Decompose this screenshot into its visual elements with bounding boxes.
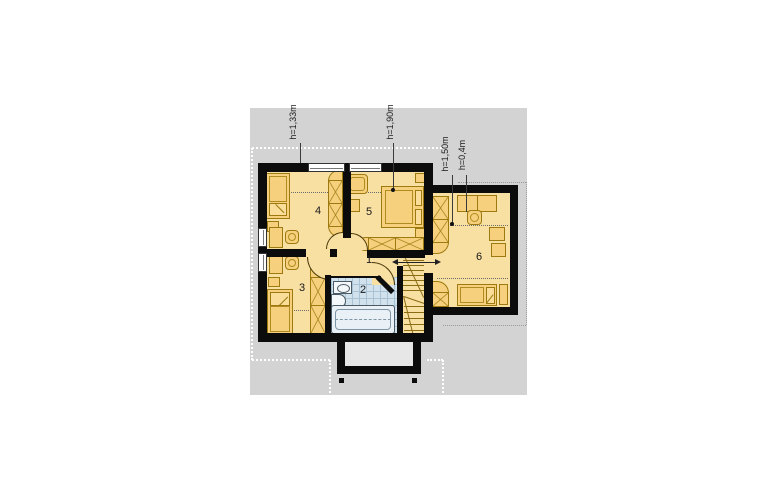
sink	[333, 281, 352, 294]
wardrobe-room3-upper	[310, 277, 326, 306]
wall-bottom	[258, 333, 433, 342]
leader-line-150	[452, 175, 453, 224]
roof-eave-line-bottom-left	[252, 359, 330, 361]
height-annotation-190: h=1,90m	[385, 100, 397, 144]
wardrobe-room4-lower	[328, 203, 343, 227]
roof-eave-line-bottom-right	[427, 359, 443, 361]
stair-tread	[404, 324, 424, 325]
wardrobe-room4-upper	[328, 180, 343, 204]
cabinet-room6-lower	[491, 243, 506, 257]
wall-right-upper	[424, 163, 433, 255]
annex-eave-line-top	[458, 182, 526, 183]
porch-wall-bottom	[337, 366, 421, 374]
bathtub	[331, 305, 395, 334]
post-marker-right	[412, 378, 417, 383]
stair-tread	[403, 265, 424, 266]
desk-room6-right	[477, 195, 497, 212]
room-label-bedroom3: 3	[296, 282, 308, 294]
wall-room4-room3	[267, 249, 306, 257]
wardrobe-room5-right	[395, 237, 424, 251]
chair-room6	[467, 210, 482, 225]
double-bed-room5	[381, 186, 424, 228]
stair-tread	[404, 312, 424, 313]
stair-direction-arrow	[397, 262, 435, 263]
wall-stub-hall	[330, 249, 337, 257]
wall-bathroom-stairs	[397, 266, 403, 334]
porch-interior	[345, 342, 413, 366]
annex-wall-top	[424, 185, 518, 193]
window-left-1	[258, 228, 267, 247]
roof-eave-line-top	[252, 147, 442, 149]
wall-top	[258, 163, 433, 172]
stair-tread	[404, 306, 424, 307]
desk-room4	[269, 227, 283, 248]
kneewall-line-room6-lower	[437, 278, 508, 279]
stair-tread	[403, 270, 424, 271]
bed-room3	[267, 289, 293, 335]
room-label-bedroom6: 6	[473, 251, 485, 263]
leader-dot-150	[450, 222, 454, 226]
kneewall-line-room6-upper	[450, 225, 508, 226]
arrowhead-left-icon	[392, 259, 398, 265]
room-label-bedroom5: 5	[363, 206, 375, 218]
wall-room4-room5	[343, 172, 351, 238]
cabinet-room6-upper	[489, 227, 505, 241]
post-marker-left	[339, 378, 344, 383]
window-top-1	[308, 163, 345, 172]
height-annotation-150: h=1,50m	[440, 132, 452, 176]
wall-bathroom-top-line	[331, 276, 381, 278]
leader-line-04	[466, 175, 467, 212]
wardrobe-room3-lower	[310, 305, 326, 334]
wardrobe-room6-left-lower	[432, 219, 449, 243]
nightstand-room6	[499, 284, 508, 305]
roof-eave-line-gable-right	[442, 360, 444, 393]
leader-dot-190	[391, 188, 395, 192]
window-top-2	[349, 163, 382, 172]
stair-tread	[404, 318, 424, 319]
nightstand-room3	[268, 277, 280, 287]
floor-plan-canvas: 1 2 3 4 5 6 h=1,33m h=1,90m h=1,50m h=0,…	[0, 0, 780, 503]
room-label-hall: 1	[363, 254, 375, 266]
height-annotation-04: h=0,4m	[457, 135, 469, 175]
window-left-2	[258, 253, 267, 272]
annex-eave-line-bottom	[443, 325, 526, 326]
room-label-bathroom: 2	[357, 284, 369, 296]
roof-eave-line-gable-left	[329, 360, 331, 393]
wardrobe-room6-left-upper	[432, 196, 449, 220]
roof-eave-line-left	[251, 148, 253, 360]
height-annotation-133: h=1,33m	[288, 100, 300, 144]
stair-tread	[403, 285, 424, 286]
wardrobe-room6b	[432, 292, 449, 307]
chair-room4	[285, 230, 299, 244]
chair-room3	[285, 256, 299, 270]
stair-tread	[403, 280, 424, 281]
annex-wall-bottom	[424, 307, 518, 315]
wall-bathroom-left	[325, 275, 331, 334]
wardrobe-room5-left	[368, 237, 396, 251]
leader-line-190	[393, 143, 394, 190]
leader-line-133	[300, 143, 301, 163]
bed-room6	[457, 284, 497, 306]
kneewall-line-room4	[288, 192, 328, 193]
annex-eave-line-right	[526, 182, 527, 325]
stair-tread	[404, 330, 424, 331]
wall-room5-hall	[367, 250, 425, 258]
bed-room4	[266, 173, 290, 219]
room-label-bedroom4: 4	[312, 205, 324, 217]
annex-wall-right	[510, 185, 518, 315]
arrowhead-right-icon	[435, 259, 441, 265]
